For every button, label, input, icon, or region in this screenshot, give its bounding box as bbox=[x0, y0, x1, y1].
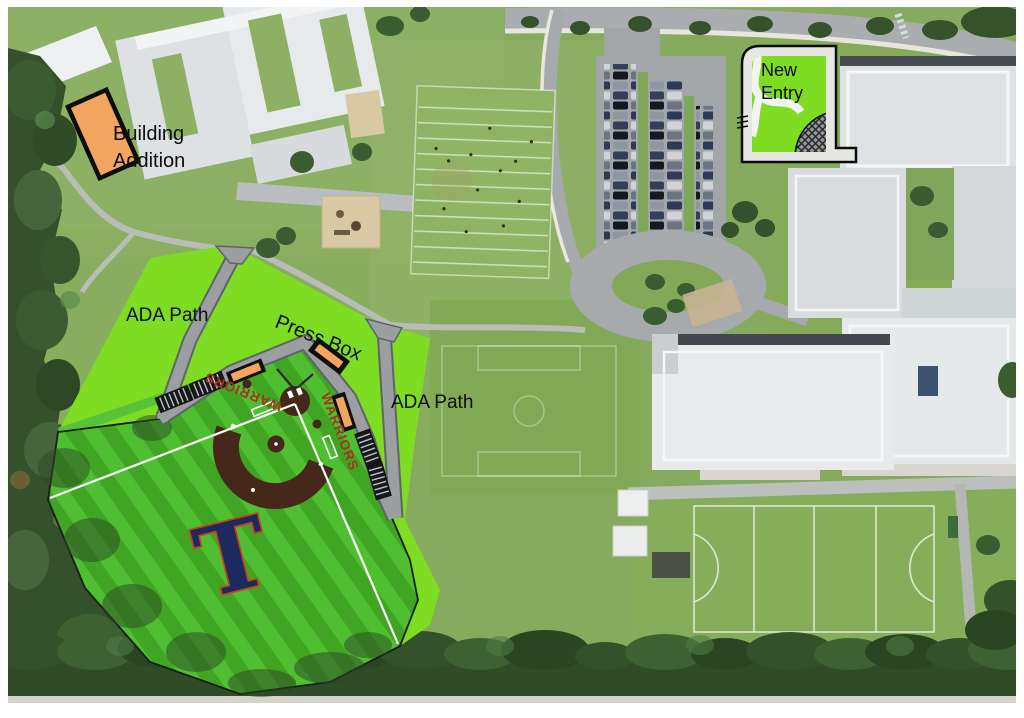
ada-path-east-label: ADA Path bbox=[391, 390, 473, 416]
building-addition-label: Building Addition bbox=[113, 121, 215, 175]
on-deck-circle bbox=[313, 420, 322, 429]
shed bbox=[618, 490, 648, 516]
site-plan-map: WARRIORS WARRIORS T Building Addition AD… bbox=[0, 0, 1024, 718]
skylight bbox=[918, 366, 938, 396]
new-entry-label: New Entry bbox=[761, 59, 823, 104]
practice-field bbox=[411, 86, 555, 279]
shed bbox=[613, 526, 647, 556]
equipment-box bbox=[652, 552, 690, 578]
aerial-map: WARRIORS WARRIORS T bbox=[0, 0, 1024, 718]
courtyard bbox=[906, 168, 954, 280]
ada-path-west-label: ADA Path bbox=[126, 303, 208, 329]
gym-building bbox=[652, 334, 894, 480]
